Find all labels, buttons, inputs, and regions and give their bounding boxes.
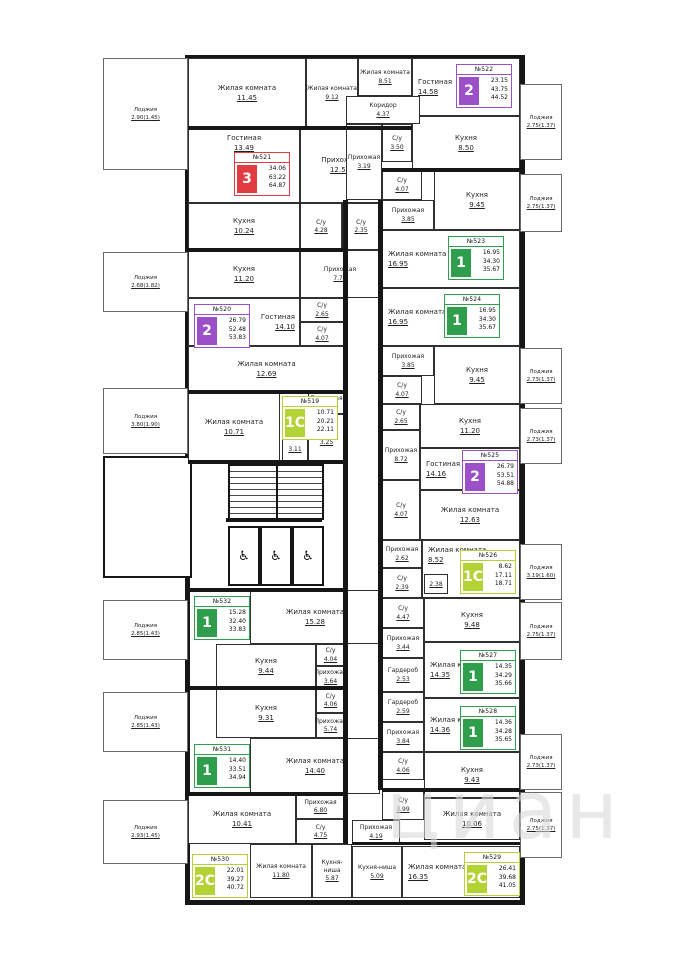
apartment-badge-529[interactable]: №5292С26.4139.6841.05 [464, 852, 520, 896]
room-name: Кухня [233, 265, 255, 274]
room-name: Лоджия [529, 624, 552, 631]
apartment-number: №523 [449, 237, 503, 247]
wall-segment [188, 390, 345, 394]
elevator-shaft: ♿ [292, 526, 324, 586]
wall-segment [188, 460, 345, 464]
apt-521-kitchen: Кухня10.24 [188, 203, 300, 250]
apartment-number: №529 [465, 853, 519, 863]
room-name: Гостиная [261, 313, 295, 322]
room-name: С/у [398, 758, 408, 766]
apt-525-loggia: Лоджия2.73(1.37) [520, 408, 562, 464]
room-name: С/у [396, 502, 406, 510]
apt-525-bathroom: С/у4.07 [382, 480, 420, 540]
room-area: 4.47 [396, 614, 409, 622]
room-area: 10.24 [234, 227, 254, 236]
apartment-number: №531 [195, 745, 249, 755]
area-value: 10.71 [307, 409, 334, 418]
room-name: Лоджия [529, 755, 552, 762]
room-name: Кухня [233, 217, 255, 226]
room-name: Лоджия [134, 623, 157, 630]
wall-segment [402, 842, 520, 845]
area-value: 34.30 [473, 258, 500, 267]
room-name: Кухня [466, 191, 488, 200]
apartment-number: №519 [283, 397, 337, 407]
room-name: Гардероб [388, 699, 418, 707]
wall-segment [382, 168, 520, 172]
apartment-badge-526[interactable]: №5261С8.6217.1118.71 [460, 550, 516, 594]
room-area: 4.07 [395, 186, 408, 194]
room-area: 4.04 [324, 656, 337, 664]
apt-530-hallway: Прихожая6.80 [296, 794, 345, 819]
area-value: 22.01 [217, 867, 244, 876]
room-name: Прихожая [360, 824, 392, 832]
rooms-count-label: 2 [459, 77, 479, 105]
rooms-count-label: 1 [197, 757, 217, 785]
room-name: С/у [316, 824, 326, 832]
apartment-badge-528[interactable]: №528114.3634.2835.65 [460, 706, 516, 750]
room-area: 2.35 [354, 227, 367, 235]
wheelchair-icon: ♿ [302, 549, 314, 564]
room-area: 3.19(1.60) [527, 573, 556, 580]
room-name: Гардероб [388, 667, 418, 675]
apartment-badge-527[interactable]: №527114.3534.2935.66 [460, 650, 516, 694]
area-value: 34.06 [259, 165, 286, 174]
room-name: Лоджия [134, 715, 157, 722]
apt-524-bathroom: С/у4.07 [382, 376, 422, 404]
rooms-count-label: 3 [237, 165, 257, 193]
wall-segment [188, 588, 345, 592]
area-value: 14.40 [219, 757, 246, 766]
room-area: 4.75 [314, 832, 327, 840]
room-area: 9.43 [464, 776, 480, 785]
apt-523-bathroom: С/у4.07 [382, 170, 422, 200]
room-name: Лоджия [529, 115, 552, 122]
apt-520-hallway: Прихожая7.77 [300, 250, 380, 298]
apt-529-hallway: Прихожая4.19 [352, 820, 400, 844]
room-name: Кухня-ниша [313, 859, 351, 874]
room-area: 4.37 [376, 111, 389, 119]
room-name: Жилая комната [218, 84, 276, 93]
apartment-badge-531[interactable]: №531114.4033.5134.94 [194, 744, 250, 788]
staircase [228, 464, 324, 520]
room-name: Кухня [461, 611, 483, 620]
rooms-count-label: 1 [447, 307, 467, 335]
room-area: 15.28 [305, 618, 325, 627]
room-name: С/у [397, 177, 407, 185]
apt-530-kitchen: Кухня-ниша5.87 [312, 844, 352, 898]
room-name: Кухня [466, 366, 488, 375]
apt-532-hallway: Прихожая3.64 [316, 666, 345, 688]
room-area: 9.44 [258, 667, 274, 676]
rooms-count-label: 1С [285, 409, 305, 437]
apt-523-hallway: Прихожая3.85 [382, 200, 434, 230]
room-area: 11.20 [460, 427, 480, 436]
room-name: Жилая комната [408, 863, 466, 872]
room-area: 2.62 [395, 555, 408, 563]
rooms-count-label: 2С [467, 865, 487, 893]
room-area: 9.48 [464, 621, 480, 630]
apt-532-kitchen: Кухня9.44 [216, 644, 316, 688]
apt-520-bathroom: С/у4.07 [300, 322, 344, 346]
room-name: Прихожая [386, 546, 418, 554]
apt-532-bathroom: С/у4.04 [316, 644, 345, 666]
apartment-number: №527 [461, 651, 515, 661]
area-value: 40.72 [217, 884, 244, 893]
area-value: 8.62 [485, 563, 512, 572]
rooms-count-label: 2 [197, 317, 217, 345]
room-area: 2.59 [396, 708, 409, 716]
apt-523-loggia: Лоджия2.75(1.37) [520, 174, 562, 232]
room-name: Лоджия [529, 818, 552, 825]
room-area: 16.95 [388, 318, 408, 327]
room-name: С/у [392, 135, 402, 143]
apartment-badge-520[interactable]: №520226.7952.4853.83 [194, 304, 250, 348]
wall-segment [188, 686, 345, 690]
room-area: 9.45 [469, 376, 485, 385]
room-name: С/у [317, 326, 327, 334]
apt-532-loggia: Лоджия2.85(1.43) [103, 600, 188, 660]
apt-526-niche: 2.38 [424, 574, 448, 594]
apt-522-living-room: Жилая комната8.51 [358, 58, 412, 96]
room-area: 2.93(1.45) [131, 833, 160, 840]
room-name: С/у [396, 409, 406, 417]
wall-segment [188, 248, 345, 252]
apt-520-kitchen: Кухня11.20 [188, 250, 300, 298]
room-area: 8.52 [428, 556, 444, 565]
apartment-badge-523[interactable]: №523116.9534.3035.67 [448, 236, 504, 280]
area-value: 34.28 [485, 728, 512, 737]
room-area: 9.31 [258, 714, 274, 723]
room-area: 3.44 [396, 644, 409, 652]
area-value: 33.51 [219, 766, 246, 775]
apt-529-bathroom: С/у3.99 [382, 790, 424, 820]
room-name: Прихожая [385, 447, 417, 455]
area-value: 44.52 [481, 94, 508, 103]
room-area: 10.71 [224, 428, 244, 437]
room-area: 2.73(1.37) [527, 377, 556, 384]
apt-529-kitchen: Кухня-ниша5.09 [352, 846, 402, 898]
apt-520-living-room: Жилая комната12.69 [188, 346, 345, 392]
room-name: С/у [397, 382, 407, 390]
room-name: Кухня [461, 766, 483, 775]
apt-527-kitchen: Кухня9.48 [424, 598, 520, 642]
apt-520-bathroom: С/у2.65 [300, 298, 344, 322]
apt-529-loggia: Лоджия2.75(1.37) [520, 792, 562, 858]
room-name: Кухня [255, 657, 277, 666]
apartment-badge-522[interactable]: №522223.1543.7544.52 [456, 64, 512, 108]
room-area: 5.09 [370, 873, 383, 881]
apartment-number: №525 [463, 451, 517, 461]
apt-531-living-room: Жилая комната14.40 [250, 738, 380, 794]
area-value: 22.11 [307, 426, 334, 435]
area-value: 26.41 [489, 865, 516, 874]
room-name: Лоджия [134, 825, 157, 832]
elevator-shaft: ♿ [260, 526, 292, 586]
room-area: 3.11 [288, 446, 301, 454]
apt-528-wardrobe: Гардероб2.59 [382, 692, 424, 722]
apt-525-hallway: Прихожая8.72 [382, 430, 420, 480]
area-value: 32.40 [219, 618, 246, 627]
room-name: Гостиная [426, 460, 460, 469]
room-area: 11.20 [234, 275, 254, 284]
room-name: Прихожая [348, 154, 380, 162]
room-area: 12.63 [460, 516, 480, 525]
room-name: С/у [356, 219, 366, 227]
apartment-number: №532 [195, 597, 249, 607]
room-area: 14.16 [426, 470, 446, 479]
area-value: 26.79 [219, 317, 246, 326]
room-name: Коридор [369, 102, 396, 110]
area-value: 26.79 [487, 463, 514, 472]
room-area: 4.07 [315, 335, 328, 343]
apt-520-loggia: Лоджия2.68(1.82) [103, 252, 188, 312]
wall-segment [188, 792, 345, 796]
rooms-count-label: 2С [195, 867, 215, 895]
room-area: 2.65 [315, 311, 328, 319]
room-area: 14.36 [430, 726, 450, 735]
room-name: Лоджия [529, 429, 552, 436]
elevator-shaft: ♿ [228, 526, 260, 586]
apt-532-living-room: Жилая комната15.28 [250, 590, 380, 644]
room-area: 3.19 [357, 163, 370, 171]
room-area: 2.53 [396, 676, 409, 684]
room-name: Жилая комната [237, 360, 295, 369]
apt-526-hallway: Прихожая2.62 [382, 540, 422, 568]
room-name: Лоджия [529, 565, 552, 572]
room-area: 5.87 [325, 875, 338, 883]
area-value: 63.22 [259, 174, 286, 183]
room-area: 2.73(1.37) [527, 763, 556, 770]
room-name: С/у [326, 647, 336, 655]
area-value: 34.94 [219, 774, 246, 783]
wall-segment [226, 518, 322, 522]
room-name: Жилая комната [213, 810, 271, 819]
apt-521-bathroom: С/у4.28 [300, 203, 342, 250]
apartment-badge-532[interactable]: №532115.2832.4033.83 [194, 596, 250, 640]
room-name: Жилая комната [388, 308, 446, 317]
room-area: 4.06 [324, 701, 337, 709]
apt-529-living-room: Жилая комната10.06 [424, 798, 520, 840]
room-name: С/у [398, 797, 408, 805]
room-area: 2.85(1.43) [131, 631, 160, 638]
apt-528-hallway: Прихожая3.84 [382, 722, 424, 752]
room-area: 12.69 [256, 370, 276, 379]
room-area: 3.80(1.90) [131, 422, 160, 429]
apt-530-living-room: Жилая комната10.41 [188, 794, 296, 844]
apt-519-loggia: Лоджия3.80(1.90) [103, 388, 188, 454]
apt-526-bathroom: С/у2.39 [382, 568, 422, 598]
apartment-number: №528 [461, 707, 515, 717]
room-name: С/у [397, 575, 407, 583]
room-name: Прихожая [314, 669, 346, 677]
apartment-number: №526 [461, 551, 515, 561]
room-area: 2.85(1.43) [131, 723, 160, 730]
room-area: 3.85 [401, 362, 414, 370]
room-area: 8.72 [394, 456, 407, 464]
apt-531-kitchen: Кухня9.31 [216, 688, 316, 738]
room-area: 11.45 [237, 94, 257, 103]
room-area: 14.58 [418, 88, 438, 97]
apartment-badge-524[interactable]: №524116.9534.3035.67 [444, 294, 500, 338]
room-area: 3.99 [396, 806, 409, 814]
apt-524-loggia: Лоджия2.73(1.37) [520, 348, 562, 404]
area-value: 35.65 [485, 736, 512, 745]
area-value: 64.87 [259, 182, 286, 191]
wall-segment [382, 788, 520, 792]
apt-527-wardrobe: Гардероб2.53 [382, 658, 424, 692]
apt-521-loggia: Лоджия2.90(1.45) [103, 58, 188, 170]
rooms-count-label: 1 [197, 609, 217, 637]
room-area: 4.06 [396, 767, 409, 775]
room-area: 4.07 [395, 391, 408, 399]
room-area: 14.10 [275, 323, 295, 332]
area-value: 54.88 [487, 480, 514, 489]
room-area: 14.35 [430, 671, 450, 680]
apt-525-kitchen: Кухня11.20 [420, 404, 520, 448]
room-name: Лоджия [134, 107, 157, 114]
rooms-count-label: 1 [463, 663, 483, 691]
room-name: С/у [316, 219, 326, 227]
area-value: 33.83 [219, 626, 246, 635]
apt-528-bathroom: С/у4.06 [382, 752, 424, 780]
wheelchair-icon: ♿ [270, 549, 282, 564]
room-area: 9.12 [325, 94, 338, 102]
apartment-badge-521[interactable]: №521334.0663.2264.87 [234, 152, 290, 196]
apt-524-kitchen: Кухня9.45 [434, 346, 520, 404]
room-name: Жилая комната [286, 608, 344, 617]
room-name: Жилая комната [388, 250, 446, 259]
room-area: 10.41 [232, 820, 252, 829]
apartment-number: №524 [445, 295, 499, 305]
area-value: 35.67 [473, 266, 500, 275]
area-value: 17.11 [485, 572, 512, 581]
room-area: 8.51 [378, 78, 391, 86]
apt-530-loggia: Лоджия2.93(1.45) [103, 800, 188, 864]
wall-segment [352, 842, 402, 845]
apt-530-bathroom: С/у4.75 [296, 819, 345, 844]
room-name: С/у [326, 693, 336, 701]
room-area: 9.45 [469, 201, 485, 210]
apt-521-living-room: Жилая комната11.45 [188, 58, 306, 128]
area-value: 20.21 [307, 418, 334, 427]
room-area: 2.75(1.37) [527, 632, 556, 639]
room-area: 3.64 [324, 678, 337, 686]
apt-522-hallway: Прихожая3.19 [346, 124, 382, 200]
room-name: Кухня [459, 417, 481, 426]
room-area: 8.50 [458, 144, 474, 153]
wheelchair-icon: ♿ [238, 549, 250, 564]
area-value: 43.75 [481, 86, 508, 95]
area-value: 35.66 [485, 680, 512, 689]
room-name: Прихожая [387, 635, 419, 643]
area-value: 18.71 [485, 580, 512, 589]
room-area: 14.40 [305, 767, 325, 776]
area-value: 39.68 [489, 874, 516, 883]
room-area: 4.19 [369, 833, 382, 841]
area-value: 35.67 [469, 324, 496, 333]
apt-523-kitchen: Кухня9.45 [434, 170, 520, 230]
apt-527-hallway: Прихожая3.44 [382, 628, 424, 658]
area-value: 53.51 [487, 472, 514, 481]
room-name: Жилая комната [286, 757, 344, 766]
room-area: 16.35 [408, 873, 428, 882]
apartment-number: №521 [235, 153, 289, 163]
apt-531-hallway: Прихожая5.74 [316, 713, 345, 738]
entrance-vestibule [103, 456, 192, 578]
apt-531-loggia: Лоджия2.85(1.43) [103, 692, 188, 752]
apartment-number: №530 [193, 855, 247, 865]
room-name: Прихожая [392, 207, 424, 215]
rooms-count-label: 1С [463, 563, 483, 591]
apt-522-loggia: Лоджия2.75(1.37) [520, 84, 562, 160]
room-name: Лоджия [529, 369, 552, 376]
rooms-count-label: 1 [451, 249, 471, 277]
apt-522-kitchen: Кухня8.50 [412, 116, 520, 170]
room-name: Гостиная [418, 78, 452, 87]
area-value: 14.36 [485, 719, 512, 728]
room-name: Кухня-ниша [358, 864, 396, 872]
area-value: 16.95 [469, 307, 496, 316]
room-area: 2.75(1.37) [527, 123, 556, 130]
wall-segment [378, 200, 383, 790]
room-name: Жилая комната [443, 810, 501, 819]
area-value: 53.83 [219, 334, 246, 343]
area-value: 14.35 [485, 663, 512, 672]
room-name: Жилая комната [307, 85, 357, 93]
room-name: Прихожая [387, 729, 419, 737]
wall-segment [188, 126, 412, 130]
apartment-number: №522 [457, 65, 511, 75]
rooms-count-label: 2 [465, 463, 485, 491]
area-value: 34.29 [485, 672, 512, 681]
room-area: 2.75(1.37) [527, 204, 556, 211]
apt-522-corridor: Коридор4.37 [346, 96, 420, 124]
apartment-badge-525[interactable]: №525226.7953.5154.88 [462, 450, 518, 494]
room-area: 2.68(1.82) [131, 283, 160, 290]
room-area: 4.07 [394, 511, 407, 519]
apartment-number: №520 [195, 305, 249, 315]
apt-527-bathroom: С/у4.47 [382, 598, 424, 628]
room-name: Жилая комната [205, 418, 263, 427]
room-name: Кухня [455, 134, 477, 143]
room-name: Лоджия [134, 414, 157, 421]
room-name: Жилая комната [441, 506, 499, 515]
room-name: Кухня [255, 704, 277, 713]
area-value: 15.28 [219, 609, 246, 618]
room-area: 2.39 [395, 584, 408, 592]
room-area: 11.80 [272, 872, 289, 880]
room-area: 2.90(1.45) [131, 115, 160, 122]
room-name: Гостиная [227, 134, 261, 143]
apt-519-living-room: Жилая комната10.71 [188, 392, 280, 462]
room-area: 10.06 [462, 820, 482, 829]
room-area: 16.95 [388, 260, 408, 269]
wall-segment [343, 200, 348, 844]
room-area: 3.85 [401, 216, 414, 224]
area-value: 23.15 [481, 77, 508, 86]
area-value: 34.30 [469, 316, 496, 325]
apt-525-bathroom: С/у2.65 [382, 404, 420, 430]
apt-525-living-room: Жилая комната12.63 [420, 490, 520, 540]
apt-527-loggia: Лоджия2.75(1.37) [520, 602, 562, 660]
room-name: Жилая комната [256, 863, 306, 871]
room-name: Прихожая [304, 799, 336, 807]
room-name: Жилая комната [360, 69, 410, 77]
apartment-badge-530[interactable]: №5302С22.0139.2740.72 [192, 854, 248, 898]
apartment-badge-519[interactable]: №5191С10.7120.2122.11 [282, 396, 338, 440]
room-name: Лоджия [134, 275, 157, 282]
room-name: Прихожая [314, 718, 346, 726]
